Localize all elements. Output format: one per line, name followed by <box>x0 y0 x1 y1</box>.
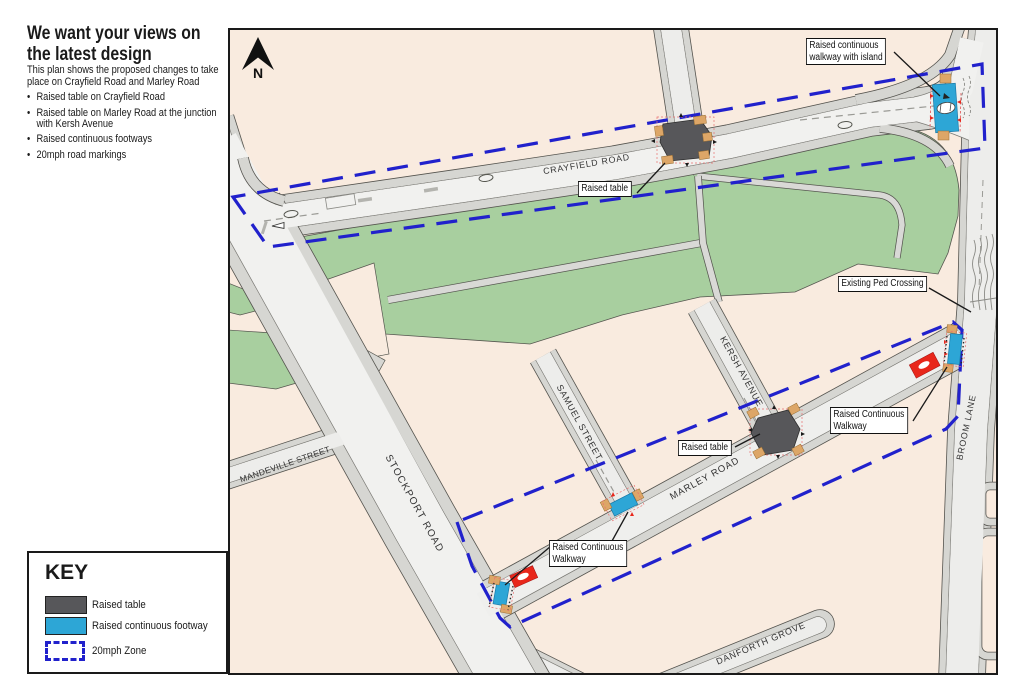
svg-text:N: N <box>253 65 263 81</box>
